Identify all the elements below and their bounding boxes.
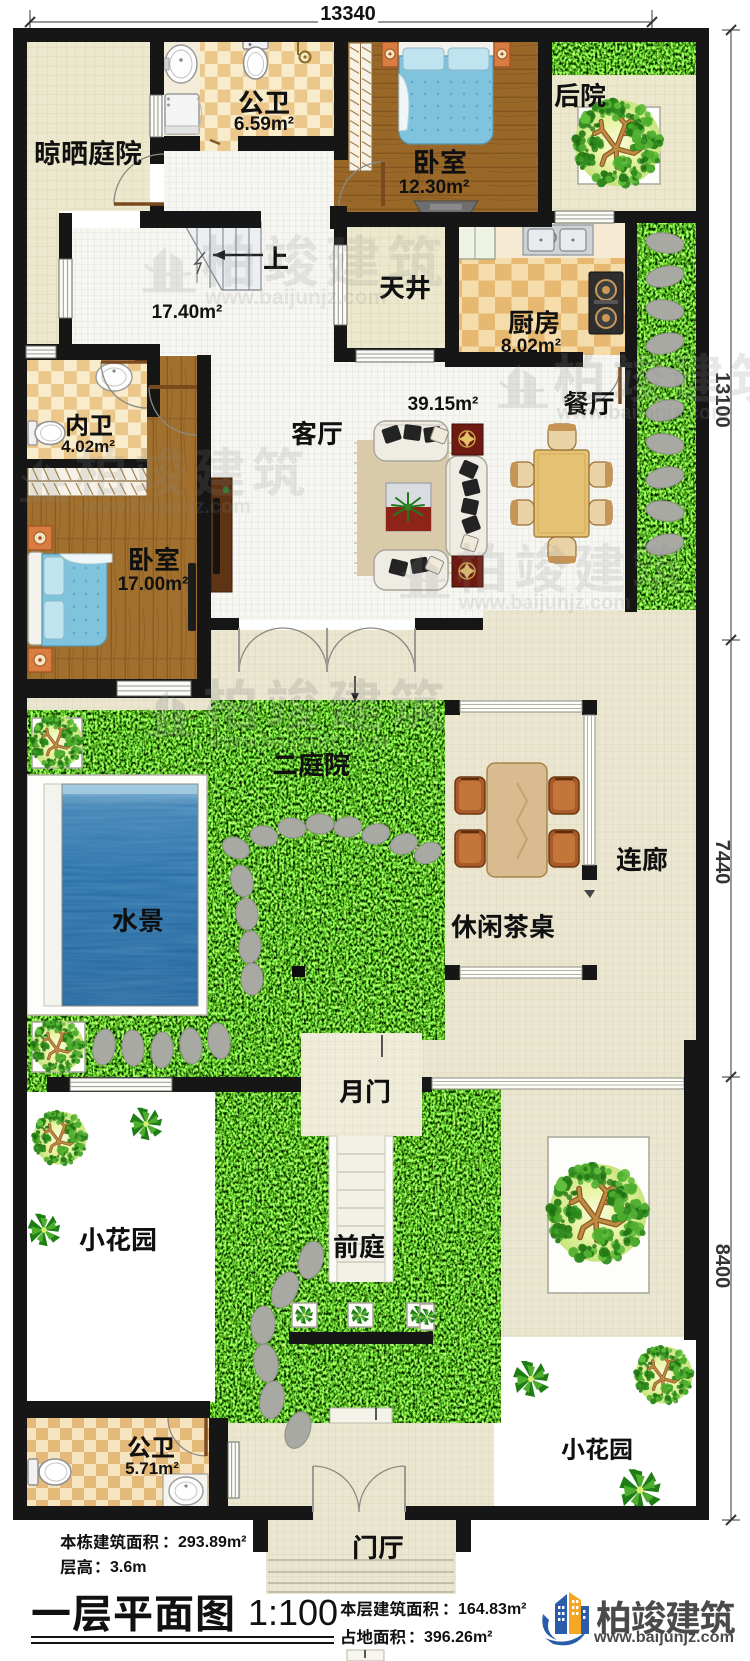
svg-text:www.baijunjz.com: www.baijunjz.com xyxy=(458,592,631,614)
svg-text:：3.6m: ：3.6m xyxy=(94,1559,146,1576)
svg-text:www.baijunjz.com: www.baijunjz.com xyxy=(593,1629,734,1646)
svg-text:12.30m²: 12.30m² xyxy=(399,177,470,198)
svg-text:5.71m²: 5.71m² xyxy=(125,1459,179,1478)
svg-text:www.baijunjz.com: www.baijunjz.com xyxy=(204,286,386,309)
svg-text:www.baijunjz.com: www.baijunjz.com xyxy=(78,496,251,518)
svg-text:www.baijunjz.com: www.baijunjz.com xyxy=(206,730,388,753)
svg-text:6.59m²: 6.59m² xyxy=(234,114,294,135)
svg-text:www.baijunjz.com: www.baijunjz.com xyxy=(556,402,729,424)
svg-text:8.02m²: 8.02m² xyxy=(501,336,561,357)
svg-text:1:100: 1:100 xyxy=(248,1592,338,1633)
svg-text:13340: 13340 xyxy=(320,3,376,25)
svg-text:39.15m²: 39.15m² xyxy=(408,394,479,415)
svg-text:17.00m²: 17.00m² xyxy=(118,574,189,595)
svg-text:：293.89m²: ：293.89m² xyxy=(162,1534,247,1551)
svg-text:：164.83m²: ：164.83m² xyxy=(442,1601,527,1618)
svg-text:8400: 8400 xyxy=(711,1244,733,1289)
svg-text:：396.26m²: ：396.26m² xyxy=(408,1629,493,1646)
svg-text:7440: 7440 xyxy=(711,840,733,885)
